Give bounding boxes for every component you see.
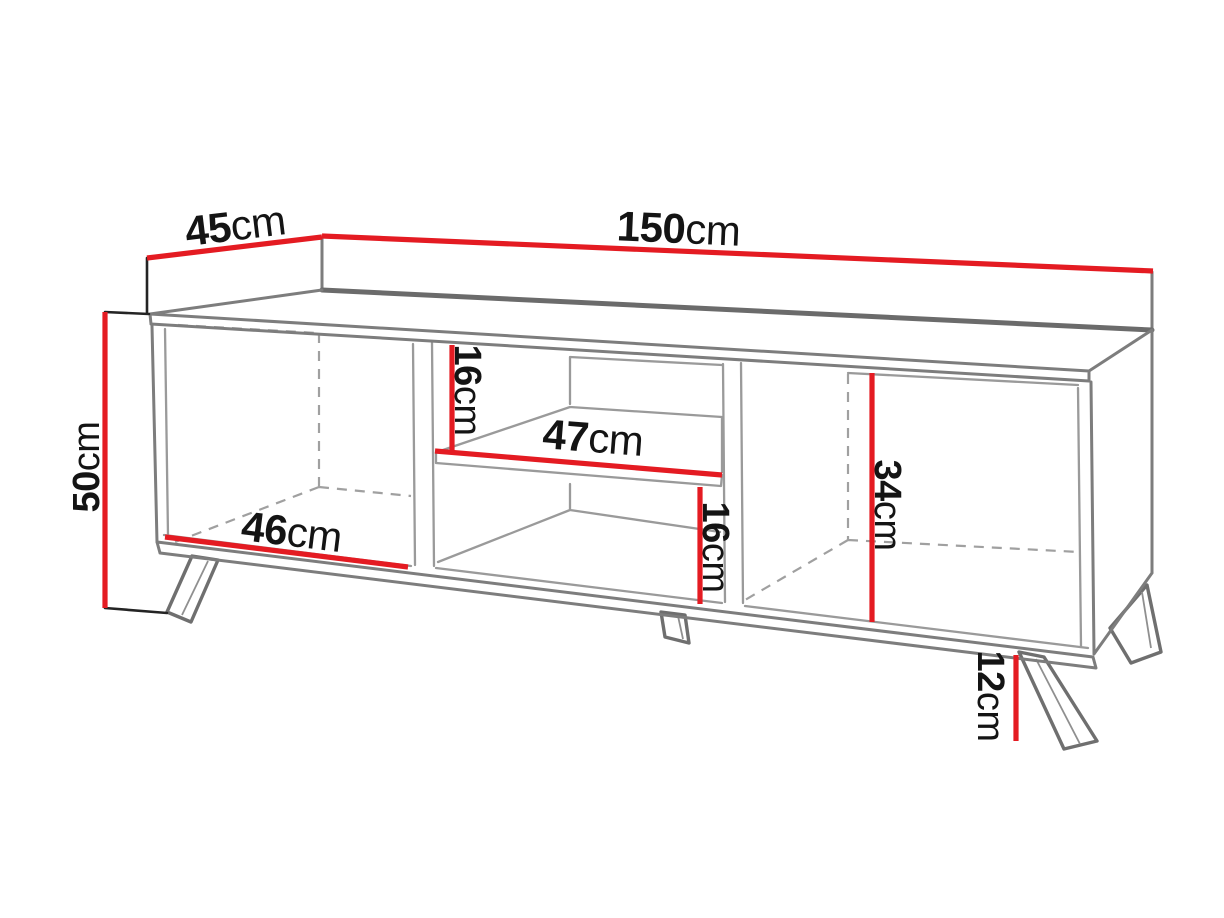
tv-stand-dimension-diagram: 45cm 150cm 50cm 16cm 47cm 46cm 16cm 34cm… [0,0,1224,918]
top-back-edge [322,290,1152,330]
side-compartment-height-label: 34cm [866,460,908,551]
shelf-width-label: 47cm [541,410,645,465]
right-compartment-hidden-edges [745,374,1079,600]
height-witness-top [105,312,149,314]
front-left-leg [167,556,218,622]
depth-label: 45cm [182,196,288,255]
leg-height-label: 12cm [969,651,1011,742]
width-label: 150cm [616,202,742,254]
height-witness-bottom [105,608,167,613]
witness-lines [105,258,167,613]
left-compartment-width-label: 46cm [239,502,345,561]
diagram-canvas: 45cm 150cm 50cm 16cm 47cm 46cm 16cm 34cm… [0,0,1224,918]
left-side-edge [152,326,157,542]
left-side-inner-edge [165,329,168,536]
dimension-labels: 45cm 150cm 50cm 16cm 47cm 46cm 16cm 34cm… [66,196,1011,741]
bottom-board-edges [157,542,1096,668]
upper-shelf-gap-label: 16cm [446,345,488,436]
right-side-inner-edge [1078,388,1081,646]
height-label: 50cm [66,422,108,513]
lower-shelf-gap-label: 16cm [694,502,736,593]
left-divider [413,342,434,566]
cabinet-outline [150,238,1152,668]
